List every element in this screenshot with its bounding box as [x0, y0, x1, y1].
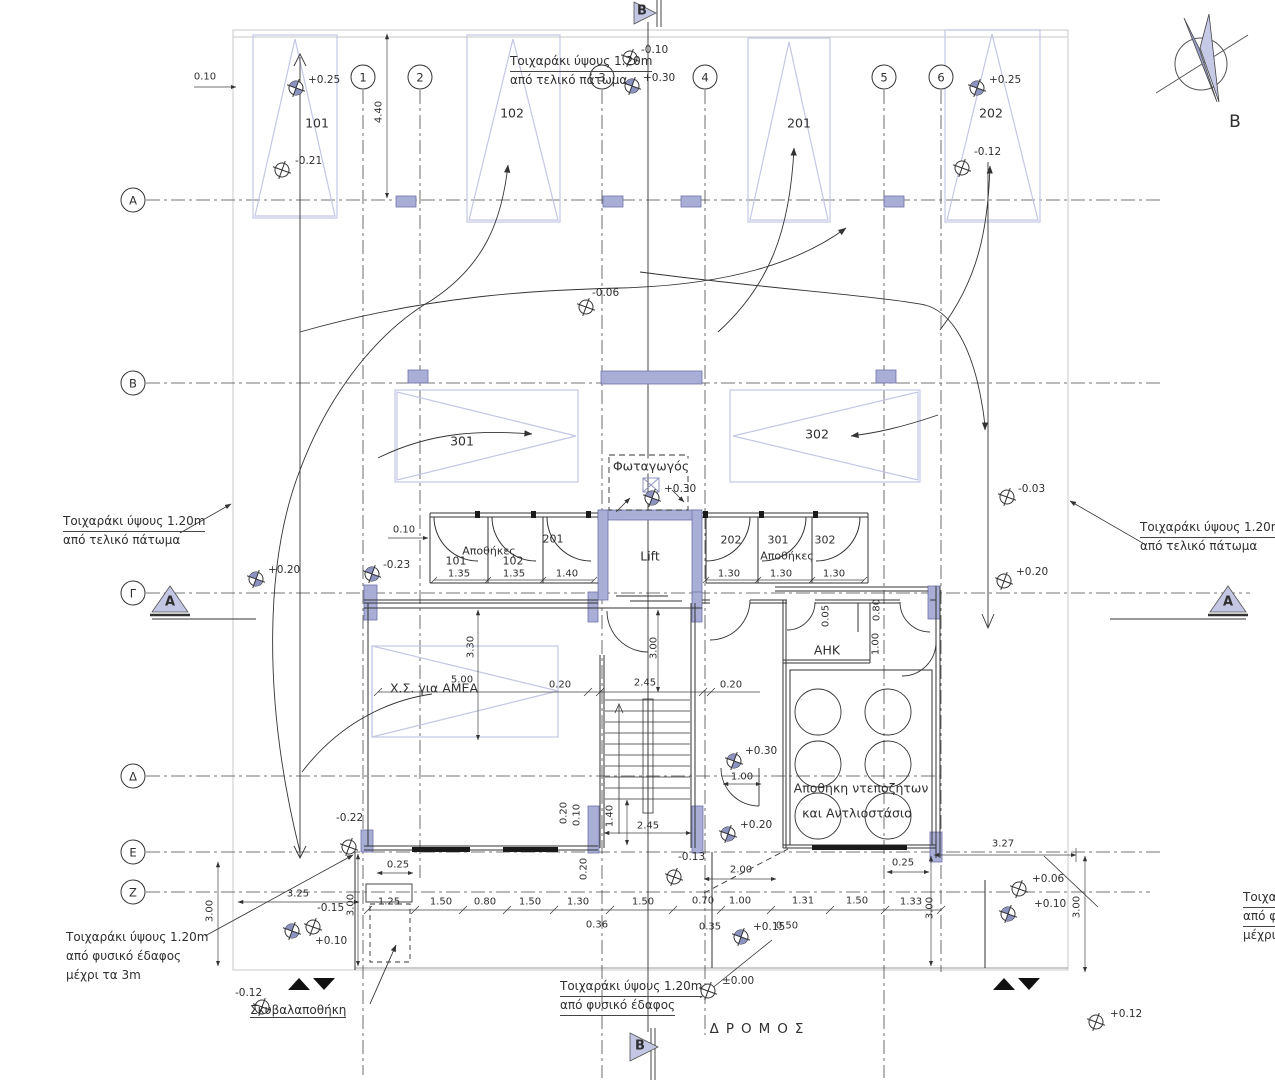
dimension-label: 0.05 — [821, 605, 832, 627]
note-top-line2: από τελικό πάτωμα — [510, 71, 627, 90]
elevation-label: -0.15 — [317, 902, 344, 914]
grid-row-z-label: Ζ — [129, 885, 137, 899]
tank-room-label-line2: και Αντλιοστάσιο — [802, 806, 912, 821]
dimension-label: 1.00 — [731, 772, 753, 783]
storage-cell-202-label: 202 — [721, 534, 742, 547]
dimension-label: 1.30 — [823, 569, 845, 580]
elevation-label: -0.06 — [592, 287, 619, 299]
grid-col-1: 1 — [351, 65, 376, 90]
dimension-label: 3.27 — [992, 839, 1014, 850]
dimension-label: 1.40 — [556, 569, 578, 580]
note-left-bottom-line3: μέχρι τα 3m — [66, 966, 141, 985]
elevation-label: +0.25 — [989, 74, 1021, 86]
grid-col-2: 2 — [408, 65, 433, 90]
note-bottom-center-line1: Τοιχαράκι ύψους 1.20m — [560, 977, 702, 997]
storage-cell-201-label: 201 — [543, 533, 564, 546]
dimension-label: 1.31 — [792, 896, 814, 907]
grid-row-e-label: Ε — [129, 845, 136, 859]
elevation-label: +0.20 — [1016, 566, 1048, 578]
dimension-label: 3.00 — [205, 900, 216, 922]
storage-right-title: Αποθήκες — [760, 550, 813, 563]
dimension-label: 1.35 — [503, 569, 525, 580]
elevation-label: -0.13 — [678, 851, 705, 863]
elevation-label: +0.30 — [643, 72, 675, 84]
dimension-label: 1.30 — [567, 897, 589, 908]
dimension-label: 3.00 — [346, 894, 357, 916]
grid-row-a: Α — [121, 188, 146, 213]
section-left-letter: Α — [165, 595, 175, 610]
dimension-label: 3.00 — [649, 637, 660, 659]
dimension-label: 4.40 — [374, 101, 385, 123]
dimension-label: 0.36 — [586, 920, 608, 931]
dimension-label: 1.50 — [519, 897, 541, 908]
grid-row-a-label: Α — [129, 193, 137, 207]
parking-stall-301-label: 301 — [450, 434, 474, 449]
grid-col-6-label: 6 — [937, 70, 944, 84]
dimension-label: 0.25 — [892, 858, 914, 869]
dimension-label: 2.00 — [730, 865, 752, 876]
dimension-label: 0.20 — [549, 680, 571, 691]
elevation-label: ±0.00 — [722, 975, 754, 987]
grid-col-5: 5 — [872, 65, 897, 90]
elevation-label: +0.30 — [745, 745, 777, 757]
grid-col-5-label: 5 — [880, 70, 887, 84]
dimension-label: 3.00 — [925, 897, 936, 919]
dimension-label: 3.25 — [287, 889, 309, 900]
grid-col-1-label: 1 — [359, 70, 366, 84]
dimension-label: 1.50 — [632, 897, 654, 908]
elevation-label: -0.10 — [641, 44, 668, 56]
dimension-label: 2.45 — [634, 678, 656, 689]
dimension-label: 1.00 — [729, 896, 751, 907]
dimension-label: 0.20 — [559, 802, 570, 824]
grid-row-d: Δ — [121, 764, 146, 789]
dimension-label: 0.10 — [393, 525, 415, 536]
dimension-label: 1.00 — [871, 633, 882, 655]
note-left-bottom-line1: Τοιχαράκι ύψους 1.20m — [66, 928, 208, 947]
dimension-label: 0.35 — [699, 922, 721, 933]
north-label: Β — [1229, 112, 1241, 132]
dimension-label: 1.50 — [430, 897, 452, 908]
dimension-label: 1.30 — [718, 569, 740, 580]
dimension-label: 1.35 — [448, 569, 470, 580]
elevation-label: +0.30 — [664, 483, 696, 495]
dimension-label: 0.80 — [474, 897, 496, 908]
floor-plan-canvas: 1 2 3 4 5 6 Α Β Γ Δ Ε Ζ 101 102 201 202 … — [0, 0, 1275, 1080]
tank-room-label-line1: Αποθήκη ντεποζήτων — [794, 781, 929, 796]
lift-label: Lift — [640, 549, 660, 564]
parking-stall-102-label: 102 — [500, 106, 524, 121]
parking-stall-202-label: 202 — [979, 106, 1003, 121]
grid-row-d-label: Δ — [129, 769, 137, 783]
grid-row-e: Ε — [121, 840, 146, 865]
dimension-label: 0.20 — [579, 858, 590, 880]
dimension-label: 1.30 — [770, 569, 792, 580]
elevation-label: +0.12 — [1110, 1008, 1142, 1020]
dimension-label: 0.20 — [720, 680, 742, 691]
note-right-mid-line2: από τελικό πάτωμα — [1140, 537, 1257, 556]
note-bottom-center-line2: από φυσικό έδαφος — [560, 996, 675, 1016]
dimension-label: 2.45 — [637, 821, 659, 832]
ahk-room-label: ΑΗΚ — [814, 643, 840, 658]
dimension-label: 3.00 — [1072, 896, 1083, 918]
grid-col-4: 4 — [693, 65, 718, 90]
elevation-label: +0.10 — [1034, 898, 1066, 910]
parking-stall-201-label: 201 — [787, 116, 811, 131]
grid-col-2-label: 2 — [416, 70, 423, 84]
dimension-label: 1.50 — [846, 896, 868, 907]
grid-row-g: Γ — [121, 581, 146, 606]
annotation-layer: 1 2 3 4 5 6 Α Β Γ Δ Ε Ζ 101 102 201 202 … — [0, 0, 1275, 1080]
section-bottom-letter: Β — [635, 1039, 645, 1054]
note-top-line1: Τοιχαράκι ύψους 1.20m — [510, 52, 652, 72]
elevation-label: +0.20 — [740, 819, 772, 831]
dimension-label: 0.10 — [572, 804, 583, 826]
grid-row-g-label: Γ — [130, 586, 136, 600]
dimension-label: 1.25 — [378, 897, 400, 908]
road-label: ΔΡΟΜΟΣ — [710, 1021, 811, 1037]
storage-cell-302-label: 302 — [815, 534, 836, 547]
lightwell-label: Φωταγωγός — [613, 459, 689, 474]
storage-cell-101-label: 101 — [446, 555, 467, 568]
garbage-store-label: Σκυβαλαποθήκη — [250, 1003, 346, 1018]
note-right-bottom-line3: μέχρι τα 3m — [1243, 926, 1275, 945]
dimension-label: 0.80 — [872, 599, 883, 621]
elevation-label: -0.03 — [1018, 483, 1045, 495]
section-right-letter: Α — [1223, 595, 1233, 610]
dimension-label: 0.25 — [387, 860, 409, 871]
grid-col-4-label: 4 — [701, 70, 708, 84]
dimension-label: 0.70 — [692, 896, 714, 907]
dimension-label: 0.10 — [194, 72, 216, 83]
elevation-label: +0.20 — [268, 564, 300, 576]
grid-row-b-label: Β — [129, 376, 137, 390]
dimension-label: 1.33 — [900, 897, 922, 908]
note-left-bottom-line2: από φυσικό έδαφος — [66, 947, 181, 966]
note-left-mid-line1: Τοιχαράκι ύψους 1.20m — [63, 512, 205, 532]
note-left-mid-line2: από τελικό πάτωμα — [63, 531, 180, 550]
elevation-label: -0.12 — [235, 987, 262, 999]
note-right-bottom-line1: Τοιχαράκι ύψους 1.20m — [1243, 888, 1275, 908]
dimension-label: 3.30 — [466, 636, 477, 658]
grid-col-6: 6 — [929, 65, 954, 90]
dimension-label: 0.50 — [776, 921, 798, 932]
section-top-letter: Β — [637, 4, 647, 19]
parking-stall-302-label: 302 — [805, 427, 829, 442]
elevation-label: +0.06 — [1032, 873, 1064, 885]
elevation-label: -0.23 — [383, 559, 410, 571]
dimension-label: 5.00 — [451, 675, 473, 686]
elevation-label: +0.10 — [315, 935, 347, 947]
elevation-label: -0.22 — [336, 812, 363, 824]
grid-row-b: Β — [121, 371, 146, 396]
elevation-label: -0.21 — [295, 155, 322, 167]
note-right-mid-line1: Τοιχαράκι ύψους 1.20m — [1140, 518, 1275, 538]
grid-row-z: Ζ — [121, 880, 146, 905]
parking-stall-101-label: 101 — [305, 116, 329, 131]
storage-cell-102-label: 102 — [503, 555, 524, 568]
elevation-label: -0.12 — [974, 146, 1001, 158]
note-right-bottom-line2: από φυσικό έδαφος — [1243, 907, 1275, 927]
elevation-label: +0.25 — [308, 74, 340, 86]
dimension-label: 1.40 — [605, 805, 616, 827]
storage-cell-301-label: 301 — [768, 534, 789, 547]
